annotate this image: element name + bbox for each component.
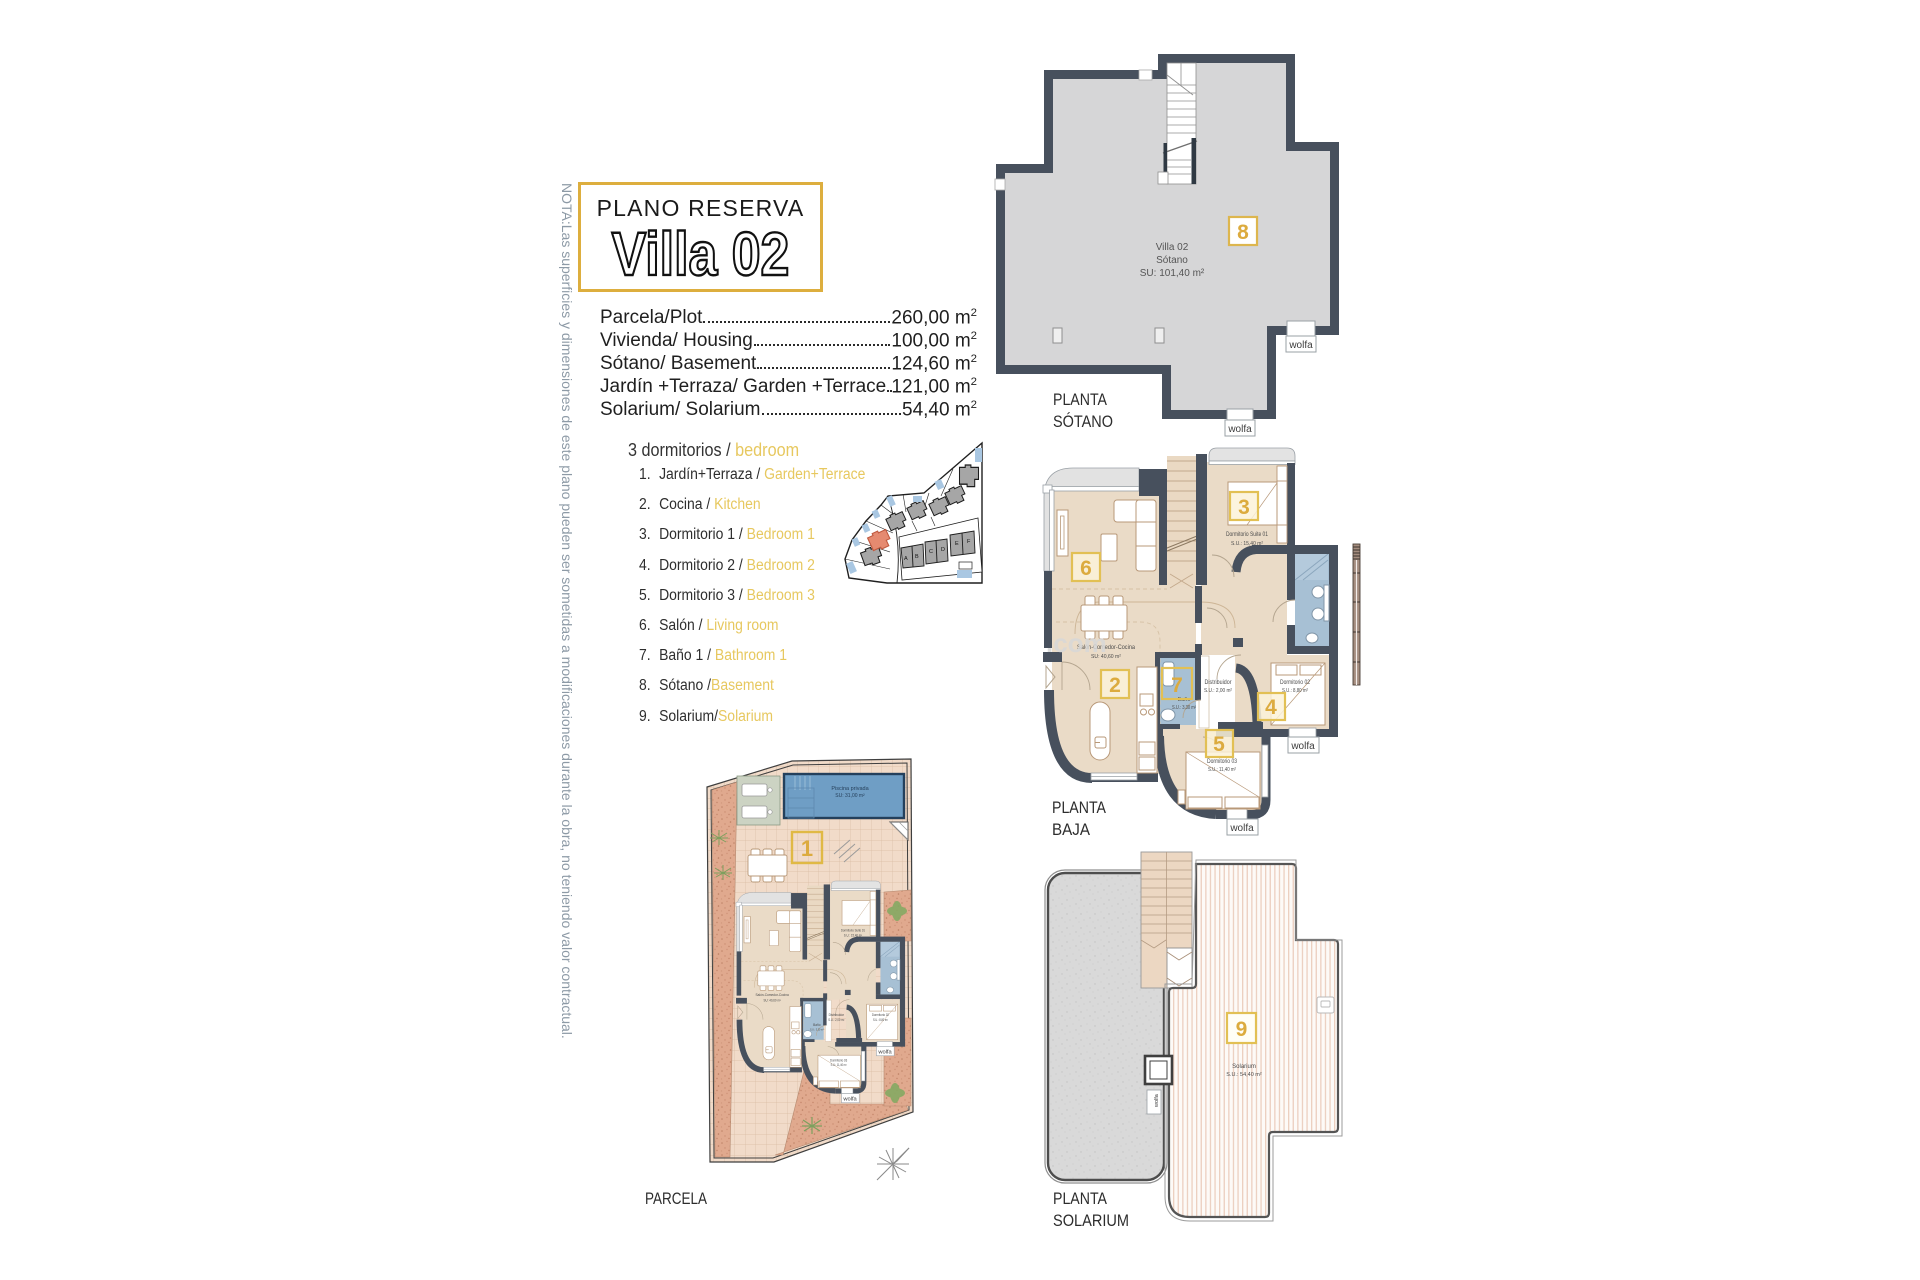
svg-text:.com: .com xyxy=(1046,628,1107,658)
svg-text:S.U.: 15,40 m²: S.U.: 15,40 m² xyxy=(1231,541,1263,547)
svg-text:BAJA: BAJA xyxy=(1052,821,1090,839)
svg-text:PLANTA: PLANTA xyxy=(1053,1190,1107,1208)
svg-text:3: 3 xyxy=(1238,496,1250,519)
svg-text:wolfa: wolfa xyxy=(1288,340,1313,351)
svg-text:Dormitorio Suite 01: Dormitorio Suite 01 xyxy=(1226,532,1269,538)
svg-text:PLANTA: PLANTA xyxy=(1052,799,1106,817)
svg-text:SOLARIUM: SOLARIUM xyxy=(1053,1212,1129,1230)
svg-text:C: C xyxy=(929,549,933,555)
svg-text:wolfa: wolfa xyxy=(1229,823,1254,834)
svg-text:7: 7 xyxy=(1171,674,1183,697)
svg-text:S.U.: 11,40 m²: S.U.: 11,40 m² xyxy=(1208,767,1236,773)
svg-text:6: 6 xyxy=(1080,557,1092,580)
svg-text:2: 2 xyxy=(1109,674,1121,697)
svg-text:D: D xyxy=(941,547,945,553)
svg-text:SU: 31,00 m²: SU: 31,00 m² xyxy=(835,793,865,799)
svg-text:E: E xyxy=(955,541,959,547)
svg-text:1: 1 xyxy=(801,836,813,861)
svg-text:S.U.: 3,30 m²: S.U.: 3,30 m² xyxy=(1172,705,1196,711)
svg-text:SU: 101,40 m²: SU: 101,40 m² xyxy=(1140,268,1205,279)
svg-text:PLANTA: PLANTA xyxy=(1053,391,1107,409)
svg-text:wolfa: wolfa xyxy=(1290,741,1315,752)
svg-text:S.U.: 54,40 m²: S.U.: 54,40 m² xyxy=(1226,1072,1262,1078)
svg-text:PARCELA: PARCELA xyxy=(645,1190,707,1208)
svg-text:5: 5 xyxy=(1213,733,1225,756)
svg-text:SÓTANO: SÓTANO xyxy=(1053,412,1113,431)
svg-text:S.U.: 2,00 m²: S.U.: 2,00 m² xyxy=(1204,688,1232,694)
svg-text:Dormitorio 02: Dormitorio 02 xyxy=(1280,680,1311,686)
svg-text:A: A xyxy=(904,556,908,562)
svg-text:8: 8 xyxy=(1237,221,1249,244)
svg-text:wolfa: wolfa xyxy=(1154,1093,1160,1108)
svg-text:Distribuidor: Distribuidor xyxy=(1205,680,1232,686)
svg-text:Villa 02: Villa 02 xyxy=(1156,242,1189,253)
svg-text:B: B xyxy=(915,554,919,560)
svg-text:9: 9 xyxy=(1236,1018,1248,1041)
svg-text:Sótano: Sótano xyxy=(1156,255,1188,266)
svg-text:Piscina privada: Piscina privada xyxy=(831,786,869,792)
svg-text:wolfa: wolfa xyxy=(1227,424,1252,435)
svg-text:4: 4 xyxy=(1265,696,1277,719)
svg-text:Dormitorio 03: Dormitorio 03 xyxy=(1207,759,1238,765)
svg-text:Solarium: Solarium xyxy=(1232,1064,1256,1070)
